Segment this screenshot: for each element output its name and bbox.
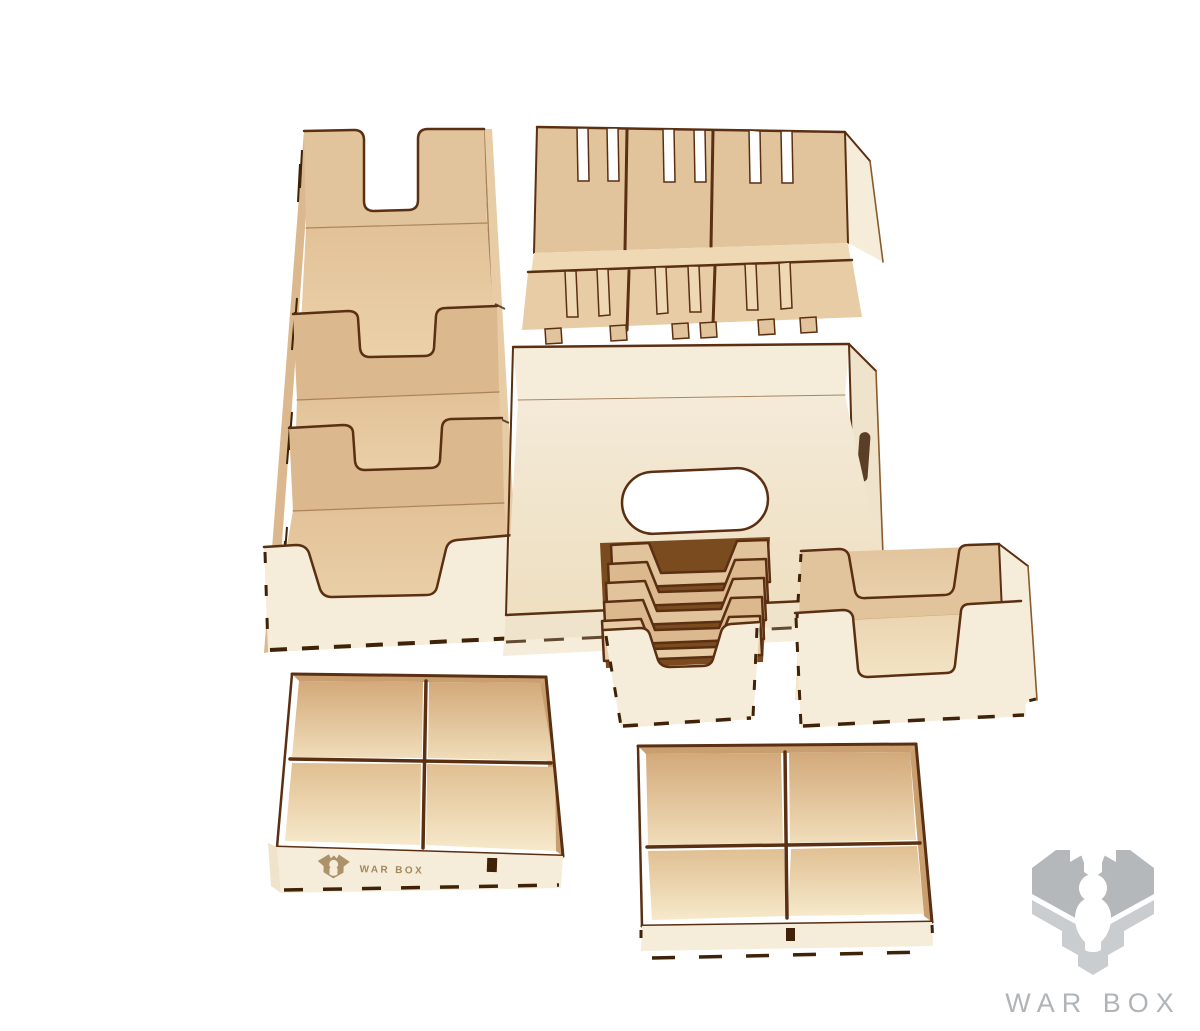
- engraved-text: WAR BOX: [359, 864, 424, 877]
- comb-tray-divider-2: [711, 131, 713, 247]
- card-tray-back-wall: [304, 129, 487, 228]
- card-tray-3-slot: [264, 129, 521, 653]
- comb-tray-right-wall: [845, 132, 883, 262]
- tray2-bottom-tabs: [652, 952, 926, 958]
- tray2-divider-vertical: [785, 752, 787, 918]
- storage-box-finger-hole: [621, 467, 770, 535]
- tray2-compartment-bl: [648, 849, 786, 920]
- product-photo-canvas: WAR BOX WAR BOX: [0, 0, 1200, 1031]
- tray2-front-slot: [786, 928, 795, 941]
- tray2-compartment-tr: [789, 752, 916, 843]
- warbox-logo-watermark: WAR BOX: [1005, 842, 1181, 1018]
- tray1-compartment-tr: [428, 682, 554, 761]
- tray2-compartment-tl: [646, 753, 783, 845]
- tray2-compartment-br: [788, 846, 924, 916]
- tray1-front-slot: [487, 858, 497, 872]
- comb-tray-divider-1: [625, 130, 627, 250]
- warbox-logo-icon: [1032, 842, 1154, 975]
- storage-box-back-wall: [513, 344, 849, 401]
- divided-tray-2x2-logo: WAR BOX: [268, 674, 563, 893]
- tray1-compartment-br: [426, 764, 556, 851]
- comb-divider-tray: [522, 127, 883, 344]
- card-holder-single: [795, 544, 1037, 728]
- tray1-compartment-bl: [285, 763, 421, 845]
- tray1-compartment-tl: [292, 681, 423, 758]
- comb-tray-divider-1-front-tab: [627, 271, 629, 330]
- product-photo: WAR BOX WAR BOX: [0, 0, 1200, 1031]
- card-holder-stacked-dividers: [600, 537, 770, 728]
- comb-tray-divider-2-front-tab: [713, 266, 715, 325]
- warbox-logo-text: WAR BOX: [1005, 988, 1181, 1018]
- tray1-divider-vertical: [423, 681, 426, 848]
- divided-tray-2x2: [638, 744, 933, 958]
